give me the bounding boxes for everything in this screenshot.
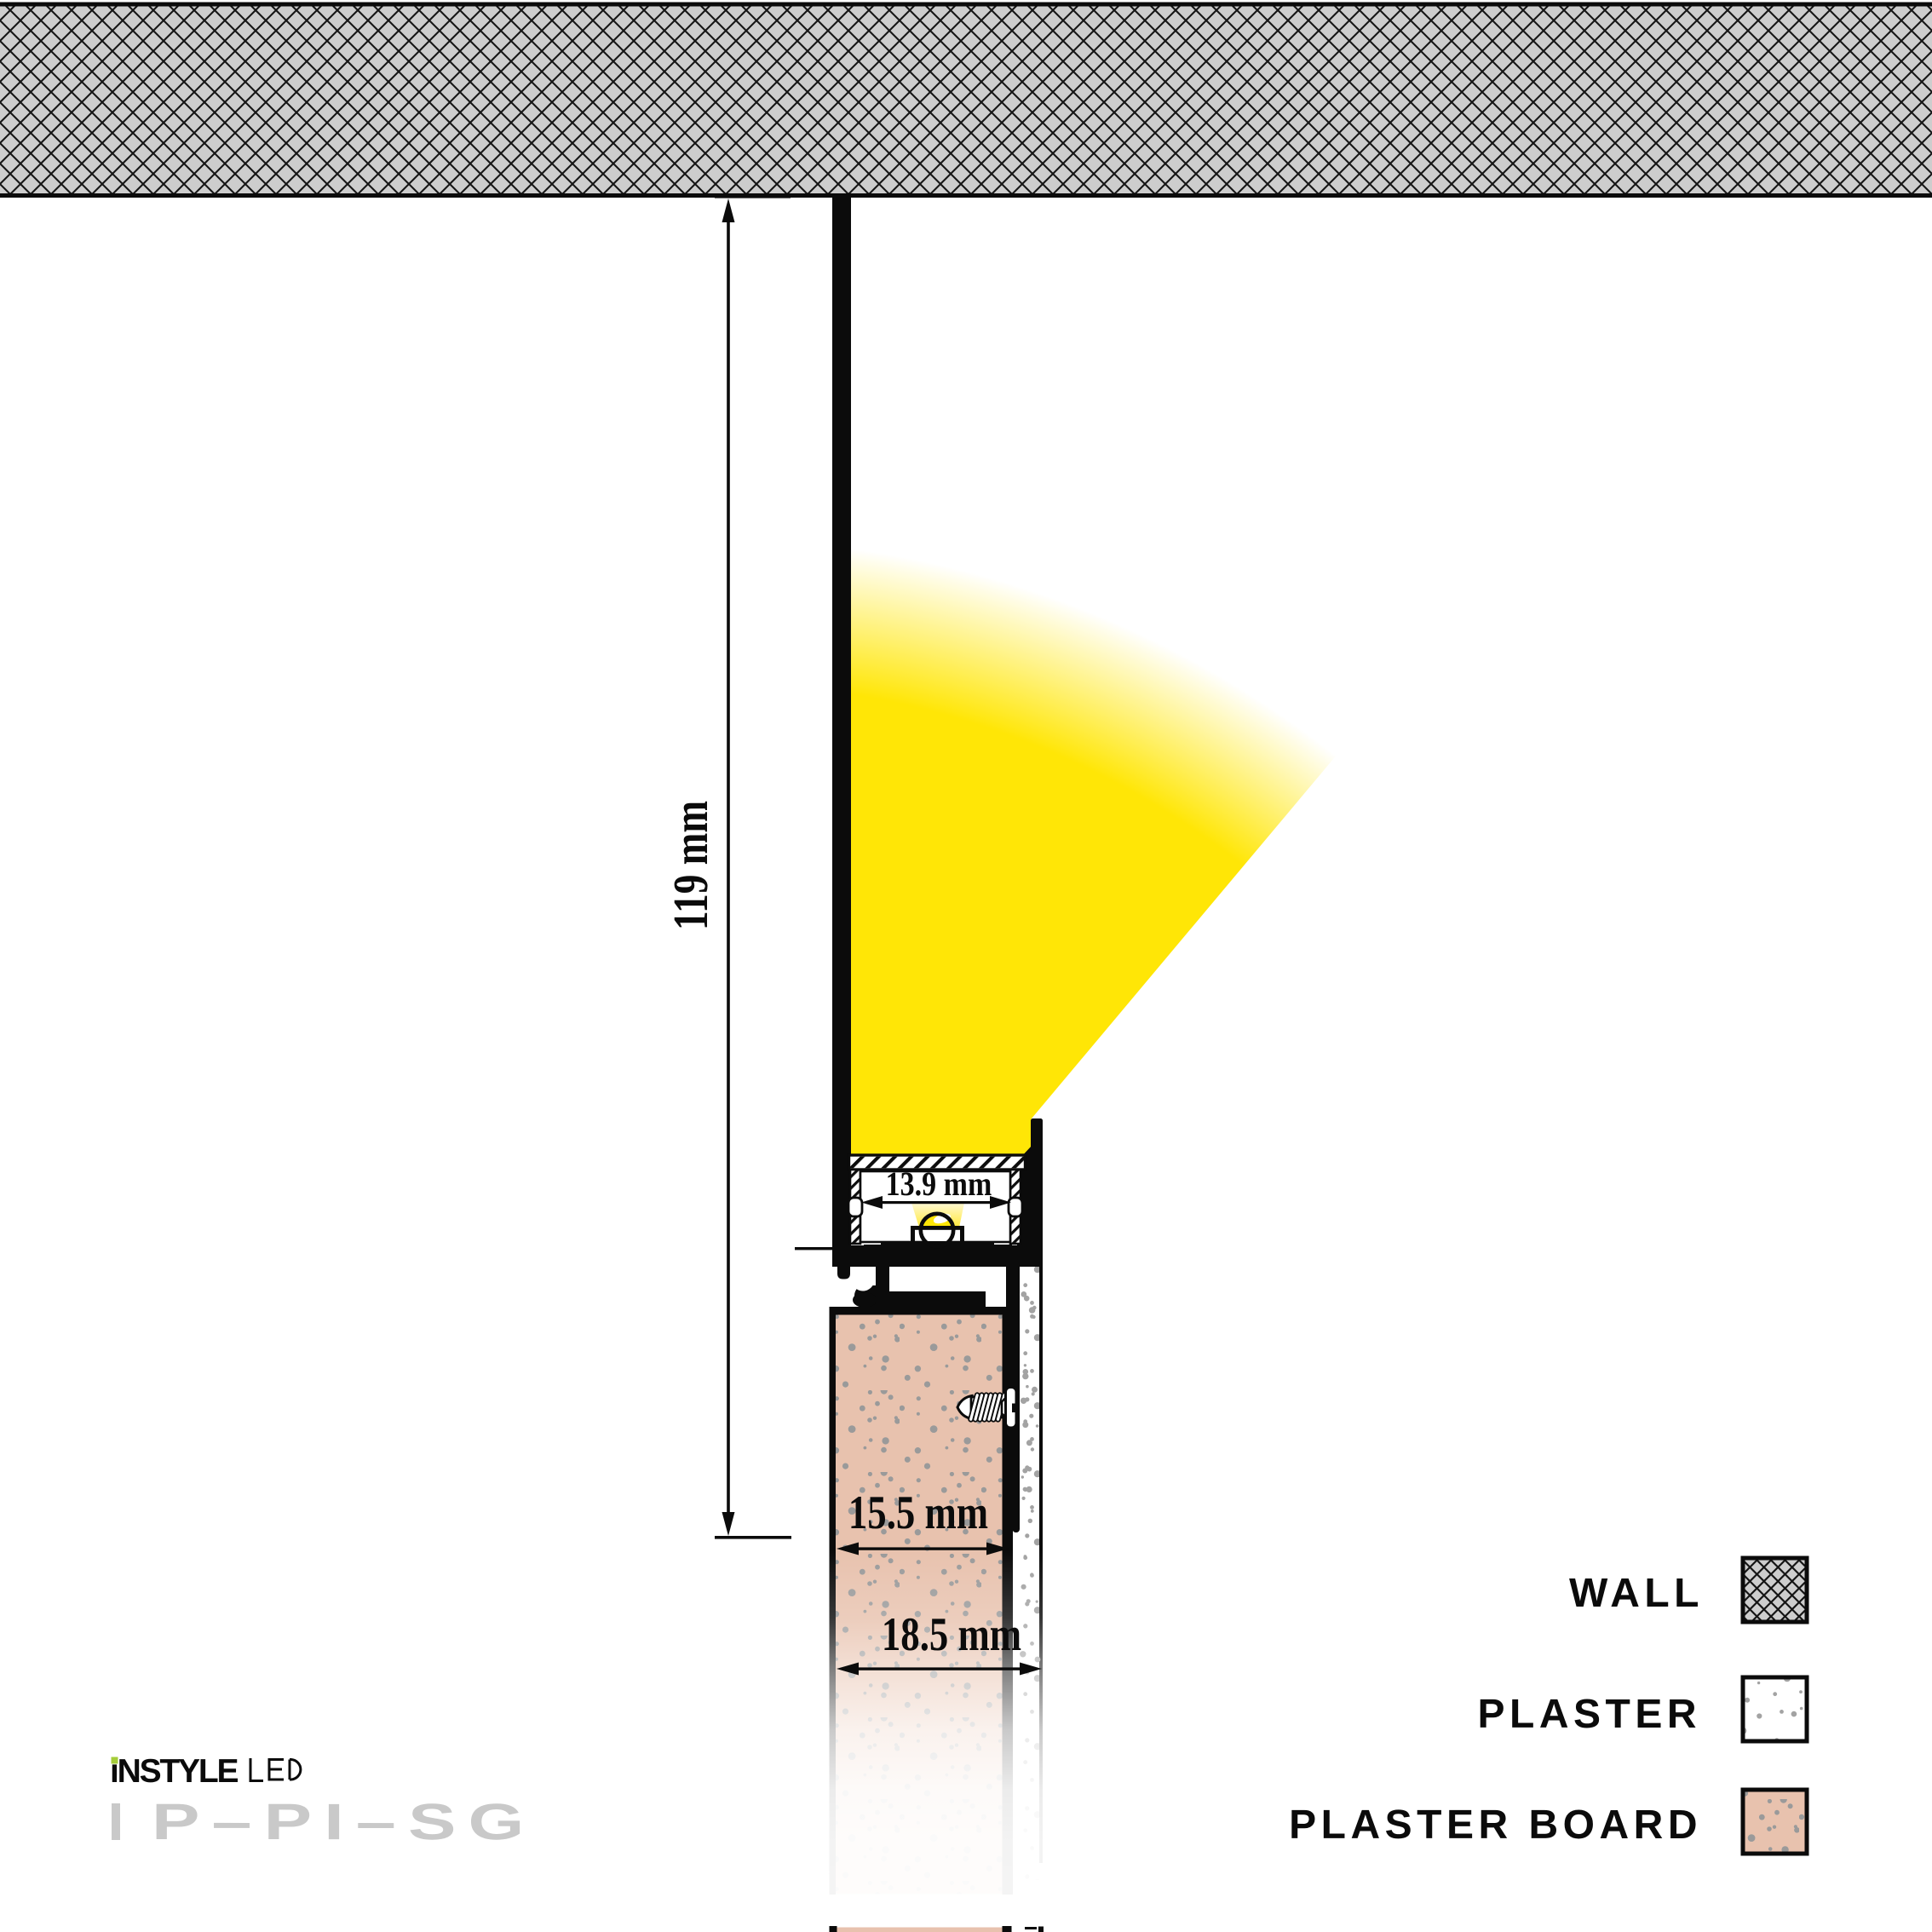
- svg-text:18.5 mm: 18.5 mm: [882, 1608, 1021, 1661]
- svg-text:119 mm: 119 mm: [663, 801, 718, 930]
- svg-text:13.9 mm: 13.9 mm: [886, 1164, 992, 1203]
- svg-text:WALL: WALL: [1569, 1571, 1704, 1616]
- svg-text:15.5 mm: 15.5 mm: [848, 1486, 988, 1539]
- svg-text:PLASTER BOARD: PLASTER BOARD: [1289, 1803, 1702, 1848]
- svg-text:PLASTER: PLASTER: [1477, 1692, 1701, 1737]
- svg-text:P–PI–SG: P–PI–SG: [152, 1793, 536, 1850]
- svg-text:ıNSTYLE: ıNSTYLE: [110, 1753, 238, 1790]
